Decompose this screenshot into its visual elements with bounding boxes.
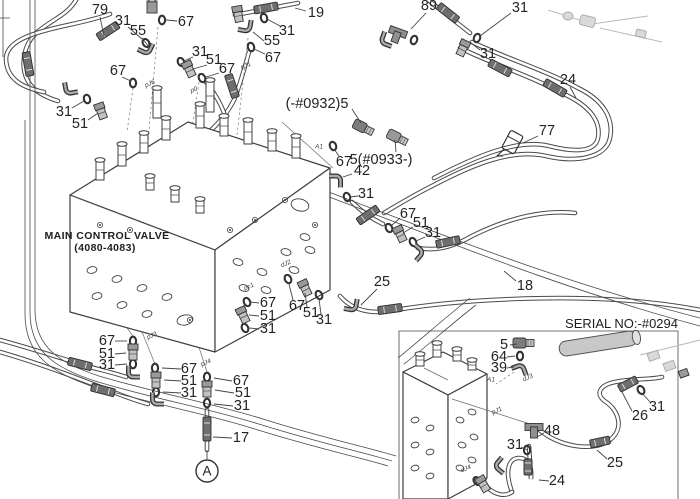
part-label-leader: [213, 437, 232, 438]
part-number-label: 79: [92, 2, 108, 18]
part-number-label: 67: [110, 63, 126, 79]
part-number-label: 31: [260, 321, 276, 337]
part-label-leader: [416, 237, 425, 241]
part-label-leader: [361, 289, 377, 305]
part-label-leader: [254, 49, 265, 54]
balloon-a: A: [196, 450, 218, 482]
part-label-leader: [391, 218, 400, 226]
part-label-leader: [72, 101, 84, 108]
part-label-leader: [507, 356, 515, 357]
part-label-leader: [253, 32, 264, 41]
part-label-leader: [411, 13, 426, 29]
part-number-label: 55: [264, 33, 280, 49]
part-number-label: 31: [480, 46, 496, 62]
part-label-leader: [115, 353, 126, 354]
valve-name-label: MAIN CONTROL VALVE: [44, 230, 169, 242]
part-label-leader: [350, 196, 358, 197]
part-number-label: 31: [99, 357, 115, 373]
part-number-label: 31: [234, 398, 250, 414]
part-number-label: 31: [115, 13, 131, 29]
part-number-label: 39: [491, 360, 507, 376]
part-label-leader: [295, 8, 306, 11]
part-number-label: 19: [308, 5, 324, 21]
part-number-label: 55: [130, 23, 146, 39]
faded-assembly: [548, 10, 662, 42]
part-label-leader: [166, 20, 177, 21]
part-label-leader: [215, 390, 234, 393]
part-number-label: 31: [425, 225, 441, 241]
part-number-label: 89: [421, 0, 437, 14]
part-label-leader: [523, 136, 538, 143]
valve-port-label: A1: [314, 144, 323, 151]
valve-port-label: A1: [486, 377, 495, 384]
part-number-label: 51: [72, 116, 88, 132]
part-label-leader: [214, 378, 232, 381]
part-number-label: 48: [544, 423, 560, 439]
part-label-leader: [164, 380, 181, 381]
part-label-leader: [622, 392, 632, 411]
part-number-label: 31: [358, 186, 374, 202]
part-label-leader: [88, 113, 98, 120]
part-number-label: 42: [354, 163, 370, 179]
balloon-a-letter: A: [202, 464, 211, 479]
part-number-label: 67: [336, 154, 352, 170]
part-number-label: 31: [512, 0, 528, 16]
part-number-label: 24: [560, 72, 576, 88]
valve-range-label: (4080-4083): [74, 242, 136, 254]
part-label-leader: [504, 271, 516, 281]
part-number-label: 67: [265, 50, 281, 66]
part-label-leader: [115, 364, 127, 365]
part-number-label: 31: [181, 385, 197, 401]
part-number-label: 31: [279, 23, 295, 39]
part-number-label: 18: [517, 278, 533, 294]
part-label-leader: [403, 227, 413, 233]
part-label-leader: [162, 368, 181, 369]
part-number-label: 77: [539, 123, 555, 139]
part-label-leader: [206, 73, 219, 77]
part-number-label: 24: [549, 473, 565, 489]
part-label-leader: [163, 392, 181, 393]
part-label-leader: [597, 450, 607, 459]
part-number-label: 31: [56, 104, 72, 120]
part-label-leader: [193, 65, 207, 69]
hydraulic-piping-parts-diagram: MAIN CONTROL VALVE (4080-4083) SERIAL NO…: [0, 0, 700, 499]
part-label-leader: [539, 480, 549, 481]
serial-number-label: SERIAL NO:-#0294: [565, 316, 678, 331]
part-number-label: 67: [219, 61, 235, 77]
part-number-label: 31: [649, 399, 665, 415]
part-number-label: 25: [607, 455, 623, 471]
part-label-leader: [214, 404, 233, 406]
part-number-label: 67: [178, 14, 194, 30]
part-number-label: 17: [233, 430, 249, 446]
part-number-label: 31: [316, 312, 332, 328]
part-label-leader: [480, 13, 511, 36]
part-number-label: 26: [632, 408, 648, 424]
part-number-label: 25: [374, 274, 390, 290]
part-number-label: (-#0932)5: [286, 96, 349, 112]
part-number-label: 31: [507, 437, 523, 453]
part-label-leader: [343, 174, 352, 177]
